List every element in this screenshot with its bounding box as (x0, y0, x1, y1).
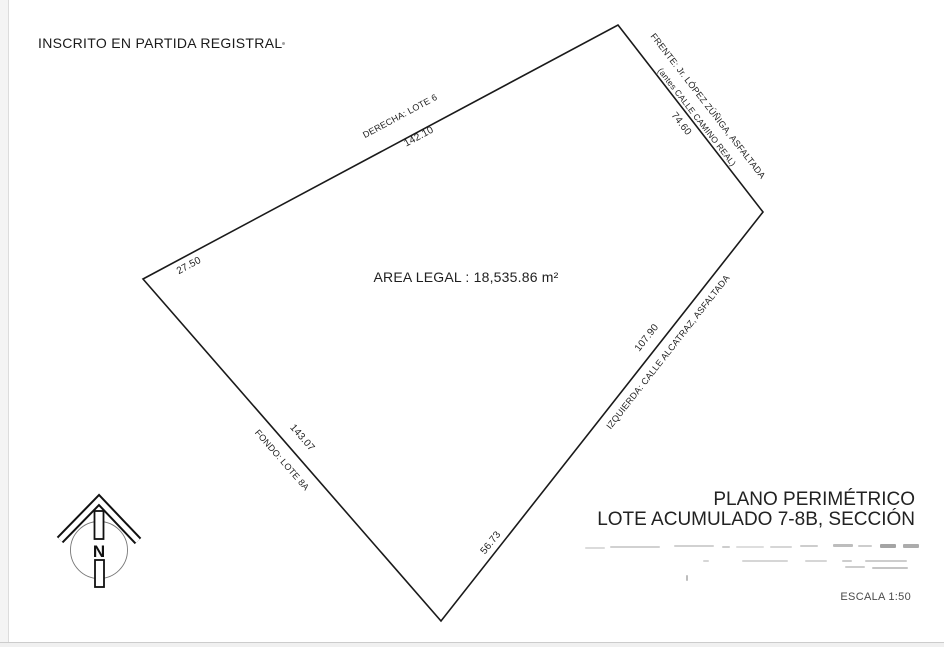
plan-title-line1: PLANO PERIMÉTRICO (597, 490, 915, 510)
redacted-smudge (858, 545, 872, 547)
redacted-smudge (703, 560, 709, 562)
scale-note: ESCALA 1:50 (840, 591, 911, 603)
north-letter: N (93, 542, 105, 561)
redacted-smudge (610, 546, 660, 548)
north-bar-lower (95, 560, 104, 587)
redacted-smudge (736, 546, 764, 548)
redacted-smudge (722, 546, 730, 548)
redacted-smudge (805, 560, 827, 562)
redacted-smudge (585, 547, 605, 549)
redacted-smudge (686, 575, 688, 581)
north-bar-upper (95, 511, 104, 539)
redacted-smudge (770, 546, 792, 548)
plan-title-line2: LOTE ACUMULADO 7-8B, SECCIÓN (597, 510, 915, 530)
redacted-smudge (842, 560, 852, 562)
scan-dot (282, 42, 285, 45)
redacted-smudge (833, 544, 853, 547)
north-arrow: N (60, 500, 138, 587)
title-block: PLANO PERIMÉTRICO LOTE ACUMULADO 7-8B, S… (597, 490, 915, 530)
redacted-smudge (742, 560, 788, 562)
redacted-smudge (845, 566, 865, 568)
redacted-smudge (674, 545, 714, 547)
redacted-smudge (872, 567, 908, 569)
parcel-drawing: N (0, 0, 944, 647)
perimeter-plan-sheet: N INSCRITO EN PARTIDA REGISTRAL AREA LEG… (0, 0, 944, 647)
area-label: AREA LEGAL : 18,535.86 m² (373, 269, 558, 285)
registry-note: INSCRITO EN PARTIDA REGISTRAL (38, 35, 282, 51)
redacted-smudge (903, 544, 919, 548)
redacted-smudge (880, 544, 896, 548)
redacted-smudge (865, 560, 907, 562)
redacted-smudge (800, 545, 818, 547)
